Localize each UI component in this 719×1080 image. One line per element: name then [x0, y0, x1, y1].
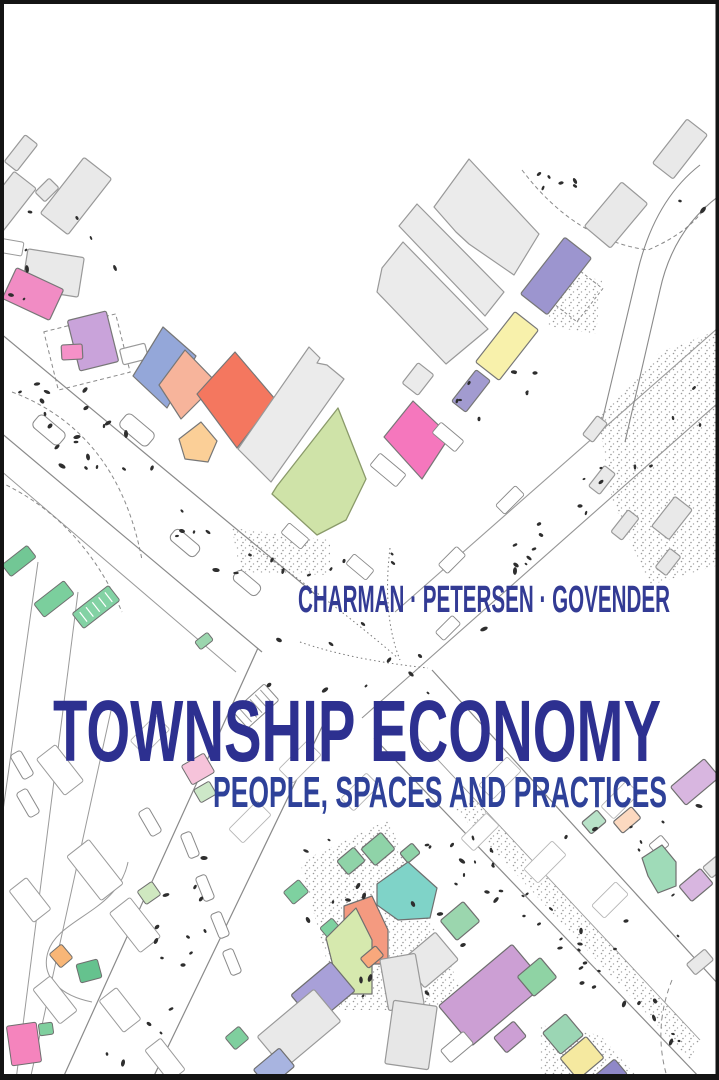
svg-text:CHARMAN · PETERSEN · GOVENDER: CHARMAN · PETERSEN · GOVENDER: [298, 579, 670, 621]
svg-text:TOWNSHIP ECONOMY: TOWNSHIP ECONOMY: [53, 683, 661, 780]
svg-text:PEOPLE, SPACES AND PRACTICES: PEOPLE, SPACES AND PRACTICES: [213, 769, 667, 817]
